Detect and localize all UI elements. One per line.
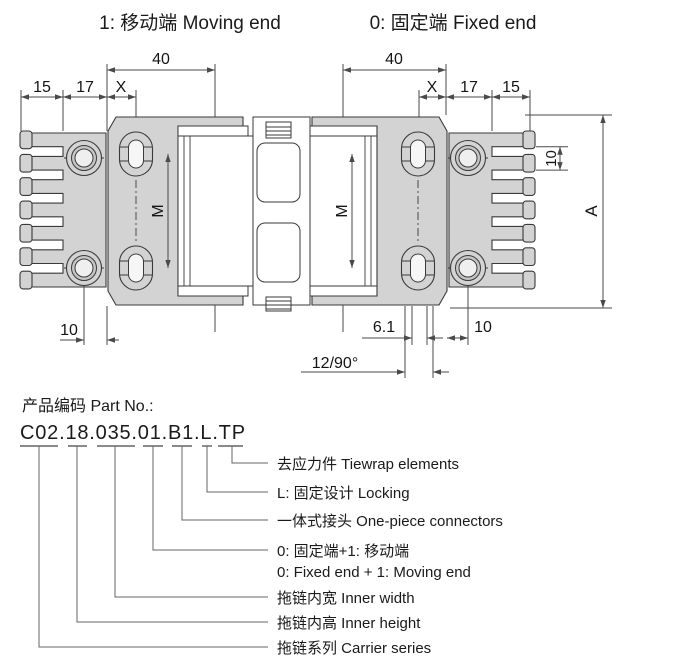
dim-left-15: 15 — [33, 79, 51, 96]
left-slot-bottom — [120, 246, 153, 290]
right-link-bottom-bar — [310, 286, 377, 296]
middle-link-latch-bottom — [266, 297, 291, 311]
legend-moving-end: 1: 移动端 Moving end — [99, 12, 281, 34]
middle-link-window-top — [257, 143, 300, 202]
right-mounting-bracket — [448, 131, 535, 345]
dim-right-40: 40 — [385, 51, 403, 68]
legend-fixed-end: 0: 固定端 Fixed end — [370, 12, 537, 34]
part-number-section: 产品编码 Part No.: C02.18.035.01.B1.L.TP 去应力… — [20, 397, 503, 657]
part-no-callouts: 去应力件 Tiewrap elements L: 固定设计 Locking 一体… — [277, 455, 503, 657]
part-no-leader-lines — [39, 446, 268, 647]
left-link-top-bar — [178, 126, 248, 136]
right-slot-bottom — [402, 246, 435, 290]
dim-bottom-right-10: 10 — [474, 319, 492, 336]
callout-tiewrap: 去应力件 Tiewrap elements — [277, 455, 459, 473]
dim-left-40: 40 — [152, 51, 170, 68]
callout-inner-width: 拖链内宽 Inner width — [277, 590, 415, 607]
dim-right-17: 17 — [460, 79, 478, 96]
dim-slot-width-6-1: 6.1 — [373, 319, 395, 336]
left-tooth-tips — [20, 131, 32, 289]
part-no-code: C02.18.035.01.B1.L.TP — [20, 422, 246, 444]
dim-bottom-left-10: 10 — [60, 322, 78, 339]
dim-tooth-pitch-10: 10 — [543, 150, 560, 167]
dim-a: A — [582, 205, 601, 217]
left-link-bottom-bar — [178, 286, 248, 296]
left-slot-top — [120, 132, 153, 176]
dim-left-17: 17 — [76, 79, 94, 96]
dim-right-15: 15 — [502, 79, 520, 96]
dim-m-left: M — [150, 204, 167, 217]
middle-link-window-bottom — [257, 223, 300, 282]
callout-inner-height: 拖链内高 Inner height — [277, 615, 421, 632]
right-link-top-bar — [310, 126, 377, 136]
part-no-label: 产品编码 Part No.: — [22, 397, 154, 415]
middle-link-latch-top — [266, 122, 291, 138]
dim-m-right: M — [334, 204, 351, 217]
dim-right-x: X — [427, 79, 438, 96]
right-slot-top — [402, 132, 435, 176]
left-link-body — [178, 136, 253, 286]
left-mounting-bracket — [20, 131, 106, 345]
dim-rotation-12-90: 12/90° — [312, 355, 358, 372]
callout-fixed-moving-cn: 0: 固定端+1: 移动端 — [277, 543, 409, 560]
right-tooth-tips — [523, 131, 535, 289]
callout-locking: L: 固定设计 Locking — [277, 485, 410, 502]
callout-carrier-series: 拖链系列 Carrier series — [277, 640, 431, 657]
dim-left-x: X — [116, 79, 127, 96]
technical-drawing: 1: 移动端 Moving end 0: 固定端 Fixed end — [0, 0, 700, 663]
callout-fixed-moving-en: 0: Fixed end + 1: Moving end — [277, 564, 471, 581]
drawing-page: 1: 移动端 Moving end 0: 固定端 Fixed end — [0, 0, 700, 663]
callout-one-piece-connectors: 一体式接头 One-piece connectors — [277, 513, 503, 530]
